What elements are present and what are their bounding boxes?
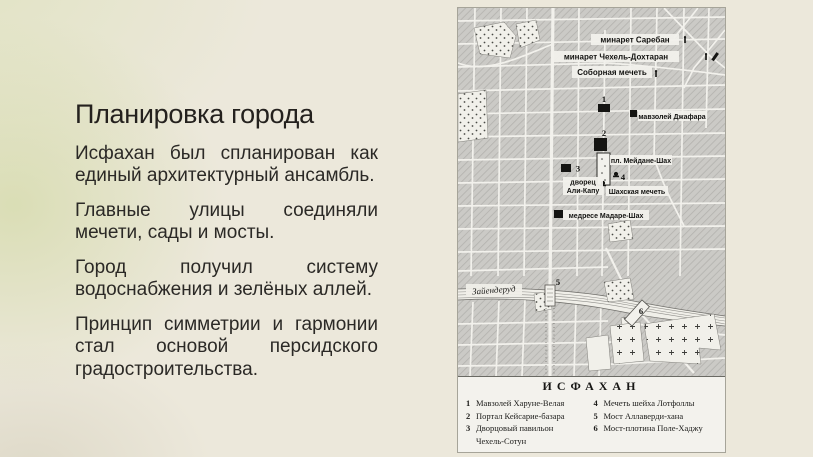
legend-item-text: Мост-плотина Поле-Хаджу [604,422,703,435]
legend-item-4: 4 Мечеть шейха Лотфоллы [594,397,722,410]
marker-2: 2 [602,128,606,138]
slide-paragraph-3: Город получил систему водоснабжения и зе… [75,257,378,302]
legend-item-text: Дворцовый павильонЧехель-Сотун [476,422,553,447]
slide-paragraph-2: Главные улицы соединяли мечети, сады и м… [75,200,378,245]
map-label-meydan-shah: пл. Мейдане-Шах [611,157,671,165]
monument-square-jafar [630,110,637,117]
monument-square-1 [598,104,610,112]
map-label-mausoleum-jafar: мавзолей Джафара [638,113,705,121]
map-label-shah-mosque: Шахская мечеть [609,189,666,196]
slide-text-block: Планировка города Исфахан был спланирова… [75,100,378,393]
map-label-minaret-chehel-dokhtaran: минарет Чехель-Дохтаран [564,53,668,62]
isfahan-map-graphic: минарет Саребан минарет Чехель-Дохтаран … [458,8,725,376]
legend-item-number: 3 [466,422,476,447]
slide-paragraph-1: Исфахан был спланирован как единый архит… [75,143,378,188]
legend-item-number: 1 [466,397,476,410]
legend-item-1: 1 Мавзолей Харуне-Велая [466,397,594,410]
presentation-slide: Планировка города Исфахан был спланирова… [0,0,813,457]
map-label-palace-ali-qapu-2: Али-Капу [567,188,600,195]
legend-item-3: 3 Дворцовый павильонЧехель-Сотун [466,422,594,447]
minaret-icon [705,53,707,60]
legend-item-number: 2 [466,410,476,423]
legend-item-2: 2 Портал Кейсарие-базара [466,410,594,423]
legend-item-text: Портал Кейсарие-базара [476,410,565,423]
slide-paragraph-4: Принцип симметрии и гармонии стал осново… [75,314,378,382]
isfahan-map-image: минарет Саребан минарет Чехель-Дохтаран … [458,8,725,452]
legend-item-5: 5 Мост Аллаверди-хана [594,410,722,423]
slide-title: Планировка города [75,100,378,130]
marker-6: 6 [639,306,643,316]
monument-square-madrese [554,210,563,218]
marker-5: 5 [556,277,560,287]
map-label-minaret-sareban: минарет Саребан [600,36,669,45]
map-legend-title: ИСФАХАН [458,379,725,394]
map-label-cathedral-mosque: Соборная мечеть [577,68,647,77]
map-label-madrese: медресе Мадаре-Шах [569,213,644,220]
legend-column-right: 4 Мечеть шейха Лотфоллы 5 Мост Аллаверди… [594,397,722,447]
map-legend-columns: 1 Мавзолей Харуне-Велая 2 Портал Кейсари… [458,394,725,447]
legend-item-number: 6 [594,422,604,435]
minaret-icon [655,70,657,77]
legend-item-number: 5 [594,410,604,423]
monument-square-3 [561,164,571,172]
bridge-allaverdi-khan [545,285,555,306]
legend-item-number: 4 [594,397,604,410]
marker-3: 3 [576,164,580,174]
legend-item-text: Мост Аллаверди-хана [604,410,684,423]
map-legend: ИСФАХАН 1 Мавзолей Харуне-Велая 2 Портал… [458,376,725,452]
legend-item-text: Мечеть шейха Лотфоллы [604,397,695,410]
legend-item-6: 6 Мост-плотина Поле-Хаджу [594,422,722,435]
legend-item-text: Мавзолей Харуне-Велая [476,397,564,410]
map-label-palace-ali-qapu-1: дворец [570,180,596,187]
marker-1: 1 [602,94,606,104]
monument-square-2 [594,138,607,151]
legend-column-left: 1 Мавзолей Харуне-Велая 2 Портал Кейсари… [466,397,594,447]
minaret-icon [684,36,686,43]
